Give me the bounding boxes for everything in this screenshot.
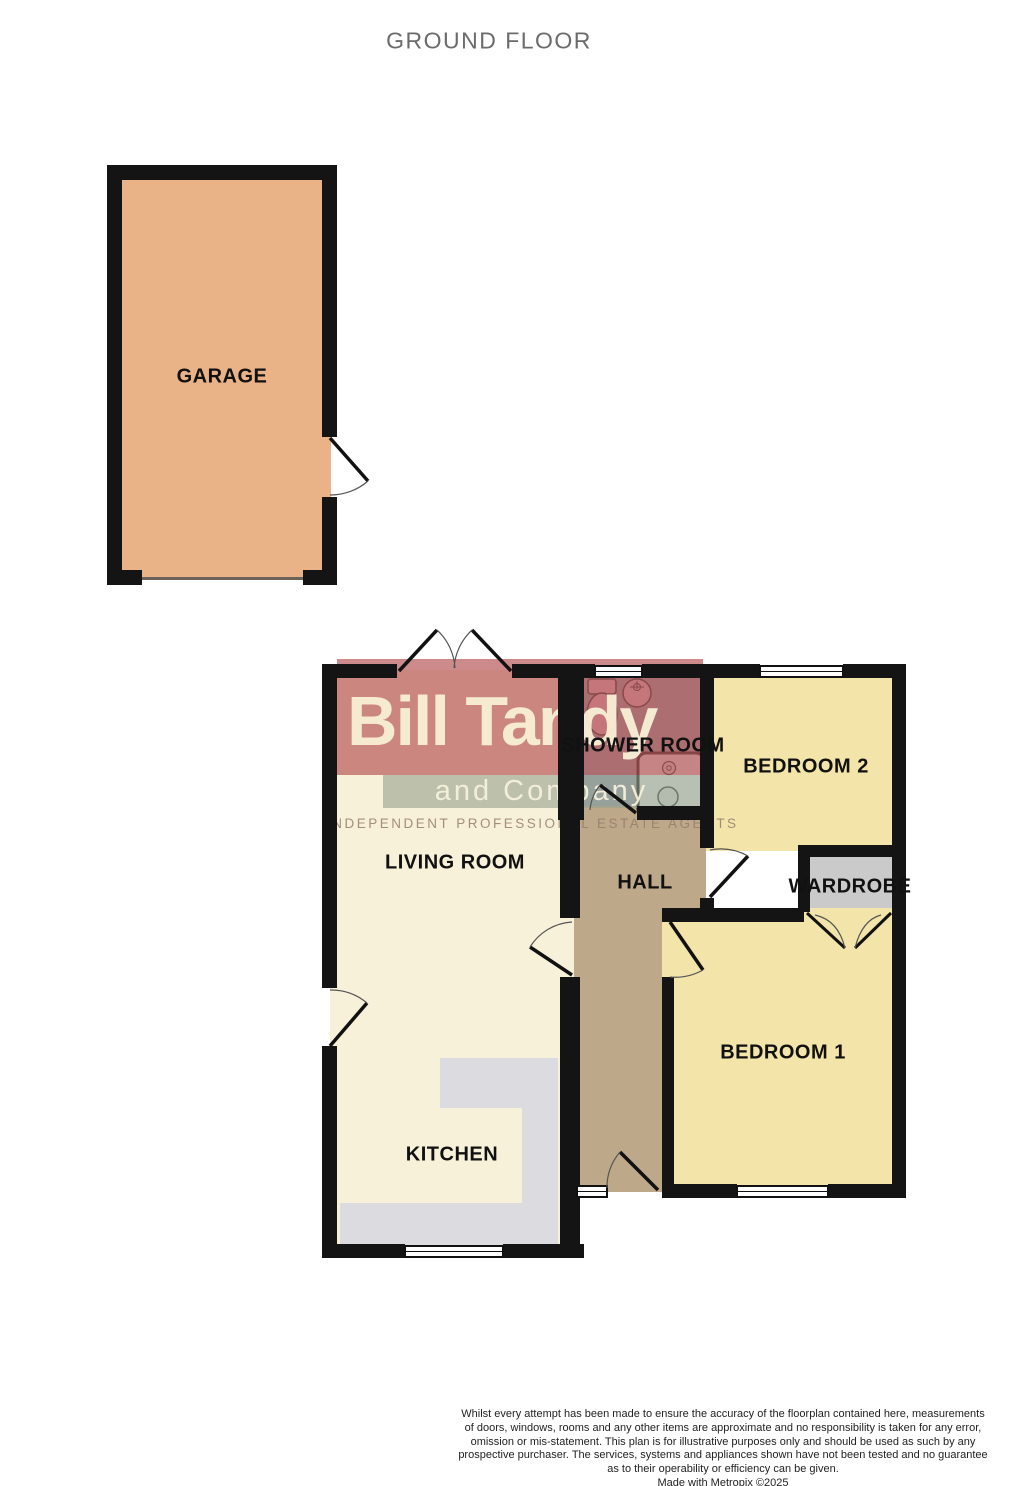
floorplan-page: GROUND FLOOR — [0, 0, 1020, 1486]
shower-room-label: SHOWER ROOM — [561, 735, 724, 758]
bedroom2-label: BEDROOM 2 — [743, 756, 869, 779]
wardrobe-label: WARDROBE — [789, 876, 912, 899]
kitchen-label: KITCHEN — [406, 1144, 498, 1167]
room-labels: GARAGE LIVING ROOM KITCHEN HALL SHOWER R… — [0, 0, 1020, 1486]
garage-label: GARAGE — [177, 366, 268, 389]
living-room-label: LIVING ROOM — [385, 852, 525, 875]
bedroom1-label: BEDROOM 1 — [720, 1042, 846, 1065]
hall-label: HALL — [617, 872, 672, 895]
